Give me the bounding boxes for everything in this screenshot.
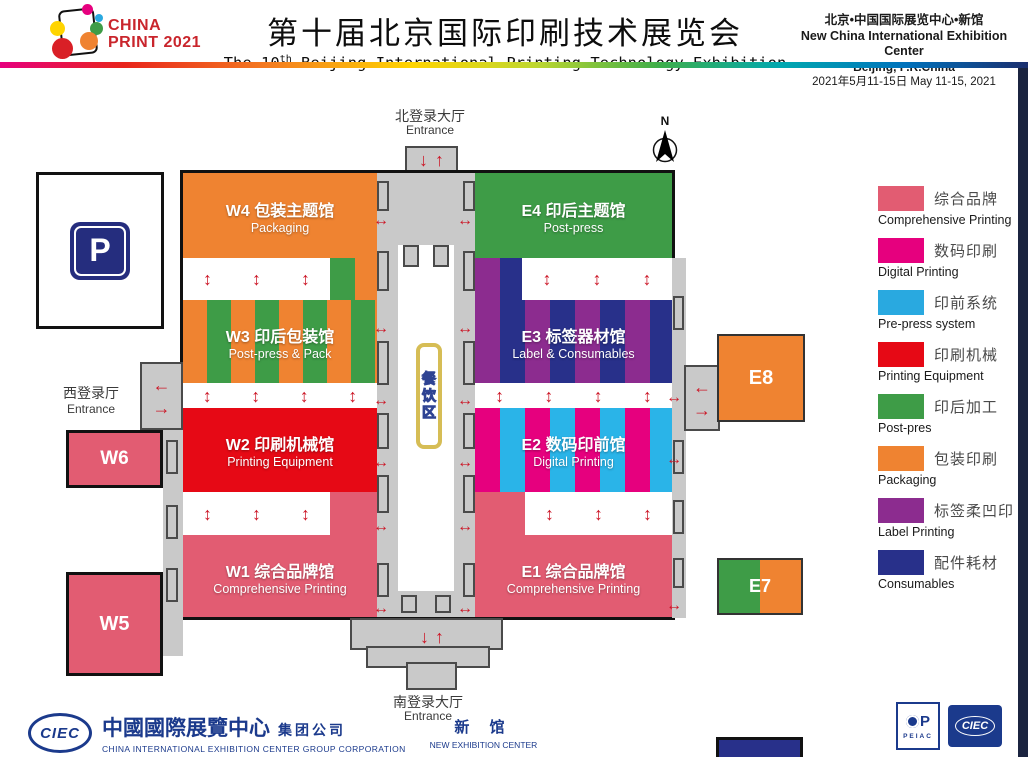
- up-down-arrow-icon: ↕: [543, 270, 552, 288]
- footer-organizer: CIEC 中國國際展覽中心 集团公司 CHINA INTERNATIONAL E…: [28, 712, 537, 754]
- aisle-walkway: ↕ ↕ ↕: [525, 492, 672, 535]
- e1-rose-column: [475, 492, 525, 535]
- legend: 综合品牌 Comprehensive Printing 数码印刷 Digital…: [878, 186, 1028, 602]
- up-down-arrow-icon: ↕: [544, 387, 553, 405]
- organizer-suffix: 集团公司: [278, 720, 346, 740]
- dining-area: 餐饮区: [416, 343, 442, 449]
- left-right-arrow-icon: ↔: [457, 213, 473, 229]
- legend-swatch: [878, 446, 924, 471]
- left-right-arrow-icon: ↔: [373, 601, 389, 617]
- organizer-name-cn: 中國國際展覽中心: [102, 712, 270, 742]
- hall-e8: E8: [717, 334, 805, 422]
- door: [463, 475, 475, 513]
- venue-chinese: 北京•中国国际展览中心•新馆: [786, 13, 1022, 29]
- exhibition-dates: 2021年5月11-15日 May 11-15, 2021: [786, 75, 1022, 89]
- compass-needle-icon: [650, 128, 680, 164]
- hall-w4: W4 包装主题馆 Packaging: [183, 173, 377, 258]
- up-down-arrow-icon: ↕: [203, 270, 212, 288]
- w3-orange-column: [355, 258, 377, 300]
- up-down-arrow-icon: ↕: [643, 505, 652, 523]
- hall-w1-name-cn: W1 综合品牌馆: [226, 558, 334, 582]
- peiac-mark: P: [906, 713, 930, 730]
- central-corridor: 餐饮区 ↔ ↔ ↔ ↔ ↔ ↔ ↔ ↔ ↔ ↔ ↔ ↔: [377, 173, 475, 618]
- left-right-arrow-icon: ↔: [457, 393, 473, 409]
- legend-label-en: Pre-press system: [878, 317, 1028, 331]
- peiac-p-letter: P: [920, 713, 930, 730]
- logo-dot-yellow: [50, 21, 65, 36]
- parking-area: P: [36, 172, 164, 329]
- hall-e7-label: E7: [749, 576, 771, 597]
- legend-swatch: [878, 290, 924, 315]
- door: [673, 500, 684, 534]
- up-down-arrow-icon: ↕: [495, 387, 504, 405]
- legend-label-en: Consumables: [878, 577, 1028, 591]
- w1-rose-column: [330, 492, 377, 535]
- ciec-logo: CIEC: [28, 713, 92, 753]
- hall-w2-name-en: Printing Equipment: [227, 455, 333, 469]
- legend-label-en: Printing Equipment: [878, 369, 1028, 383]
- legend-label-en: Label Printing: [878, 525, 1028, 539]
- legend-swatch: [878, 238, 924, 263]
- legend-label-cn: 印刷机械: [934, 344, 998, 365]
- hall-w4-name-en: Packaging: [251, 221, 309, 235]
- aisle-w4-w3: ↕ ↕ ↕: [183, 258, 377, 300]
- hall-e4-name-en: Post-press: [544, 221, 604, 235]
- logo-dot-red: [52, 38, 73, 59]
- parking-sign: P: [70, 222, 130, 280]
- hall-e4: E4 印后主题馆 Post-press: [475, 173, 672, 258]
- legend-label-cn: 综合品牌: [934, 188, 998, 209]
- west-entrance-label-cn: 西登录厅: [48, 383, 134, 403]
- door: [377, 181, 389, 211]
- logo-dot-blue: [95, 14, 103, 22]
- left-right-arrow-icon: ↔: [373, 519, 389, 535]
- legend-label-cn: 包装印刷: [934, 448, 998, 469]
- down-arrow-icon: ↓: [419, 151, 428, 169]
- up-down-arrow-icon: ↕: [252, 505, 261, 523]
- up-down-arrow-icon: ↕: [203, 505, 212, 523]
- hall-w2-name-cn: W2 印刷机械馆: [226, 431, 334, 455]
- door: [377, 475, 389, 513]
- hall-e2: E2 数码印前馆 Digital Printing: [475, 408, 672, 492]
- new-hall-cn: 新 馆: [430, 716, 538, 737]
- hall-w3-name-cn: W3 印后包装馆: [226, 323, 334, 347]
- hall-e1-name-en: Comprehensive Printing: [507, 582, 640, 596]
- north-entrance-label-en: Entrance: [370, 123, 490, 137]
- up-down-arrow-icon: ↕: [301, 505, 310, 523]
- east-entrance: ← →: [684, 365, 720, 431]
- door: [463, 181, 475, 211]
- legend-item: 印刷机械 Printing Equipment: [878, 342, 1028, 383]
- rainbow-divider: [0, 62, 1028, 68]
- door: [377, 563, 389, 597]
- hall-w5: W5: [66, 572, 163, 676]
- legend-item: 综合品牌 Comprehensive Printing: [878, 186, 1028, 227]
- left-arrow-icon: ←: [693, 378, 711, 396]
- door: [166, 440, 178, 474]
- dining-area-label: 餐饮区: [419, 371, 439, 422]
- legend-label-cn: 数码印刷: [934, 240, 998, 261]
- hall-w2: W2 印刷机械馆 Printing Equipment: [183, 408, 377, 492]
- ciec-logo-small-text: CIEC: [955, 716, 995, 736]
- south-entrance-arrows: ↓ ↑: [408, 628, 456, 646]
- legend-item: 配件耗材 Consumables: [878, 550, 1028, 591]
- up-down-arrow-icon: ↕: [545, 505, 554, 523]
- venue-english: New China International Exhibition Cente…: [786, 29, 1022, 60]
- organizer-name: 中國國際展覽中心 集团公司 CHINA INTERNATIONAL EXHIBI…: [102, 712, 406, 754]
- aisle-e4-e3: ↕ ↕ ↕: [475, 258, 672, 300]
- legend-label-cn: 印后加工: [934, 396, 998, 417]
- ciec-logo-text: CIEC: [40, 725, 80, 742]
- brand-line2: PRINT 2021: [108, 35, 201, 52]
- door: [673, 296, 684, 330]
- aisle-w3-w2: ↕ ↕ ↕ ↕: [183, 383, 377, 408]
- legend-swatch: [878, 186, 924, 211]
- up-down-arrow-icon: ↕: [251, 387, 260, 405]
- hall-w1-name-en: Comprehensive Printing: [213, 582, 346, 596]
- legend-label-cn: 配件耗材: [934, 552, 998, 573]
- up-down-arrow-icon: ↕: [594, 505, 603, 523]
- venue-info: 北京•中国国际展览中心•新馆 New China International E…: [786, 13, 1022, 89]
- left-arrow-icon: ←: [153, 376, 171, 394]
- up-down-arrow-icon: ↕: [301, 270, 310, 288]
- peiac-caption: PEIAC: [903, 733, 933, 740]
- up-down-arrow-icon: ↕: [643, 387, 652, 405]
- hall-e1-name-cn: E1 综合品牌馆: [521, 558, 625, 582]
- logo-dot-orange: [80, 32, 98, 50]
- right-arrow-icon: →: [693, 401, 711, 419]
- door: [166, 568, 178, 602]
- up-down-arrow-icon: ↕: [300, 387, 309, 405]
- left-right-arrow-icon: ↔: [457, 321, 473, 337]
- aisle-walkway: ↕ ↕ ↕: [522, 258, 672, 300]
- door: [401, 595, 417, 613]
- door: [463, 341, 475, 385]
- legend-swatch: [878, 342, 924, 367]
- hall-e8-label: E8: [749, 367, 773, 390]
- hall-e6: E6: [716, 737, 803, 757]
- aisle-e2-e1: ↕ ↕ ↕: [475, 492, 672, 535]
- door: [463, 563, 475, 597]
- legend-label-cn: 印前系统: [934, 292, 998, 313]
- exhibition-floor-plan: CHINA PRINT 2021 第十届北京国际印刷技术展览会 The 10th…: [0, 0, 1028, 757]
- legend-swatch: [878, 498, 924, 523]
- door: [377, 413, 389, 449]
- brand-line1: CHINA: [108, 18, 201, 35]
- legend-swatch: [878, 394, 924, 419]
- door: [403, 245, 419, 267]
- up-arrow-icon: ↑: [435, 151, 444, 169]
- left-right-arrow-icon: ↔: [666, 598, 682, 614]
- aisle-walkway: ↕ ↕ ↕: [183, 258, 330, 300]
- e3-striped-column: [475, 258, 522, 300]
- left-right-arrow-icon: ↔: [373, 321, 389, 337]
- up-down-arrow-icon: ↕: [348, 387, 357, 405]
- legend-item: 印前系统 Pre-press system: [878, 290, 1028, 331]
- door: [433, 245, 449, 267]
- down-arrow-icon: ↓: [420, 628, 429, 646]
- legend-label-en: Packaging: [878, 473, 1028, 487]
- door: [435, 595, 451, 613]
- legend-item: 包装印刷 Packaging: [878, 446, 1028, 487]
- up-down-arrow-icon: ↕: [643, 270, 652, 288]
- up-down-arrow-icon: ↕: [593, 270, 602, 288]
- left-right-arrow-icon: ↔: [373, 213, 389, 229]
- legend-label-en: Comprehensive Printing: [878, 213, 1028, 227]
- left-right-arrow-icon: ↔: [666, 390, 682, 406]
- compass-n-label: N: [648, 114, 682, 128]
- up-down-arrow-icon: ↕: [594, 387, 603, 405]
- parking-sign-inner: P: [74, 226, 126, 276]
- brand-text: CHINA PRINT 2021: [108, 18, 201, 52]
- up-arrow-icon: ↑: [435, 628, 444, 646]
- legend-label-cn: 标签柔凹印: [934, 500, 1014, 521]
- aisle-walkway: ↕ ↕ ↕: [183, 492, 330, 535]
- door: [377, 341, 389, 385]
- hall-w1: W1 综合品牌馆 Comprehensive Printing: [183, 535, 377, 618]
- door: [673, 558, 684, 588]
- up-down-arrow-icon: ↕: [203, 387, 212, 405]
- south-entrance: [406, 662, 457, 690]
- ciec-logo-small: CIEC: [948, 705, 1002, 747]
- legend-item: 数码印刷 Digital Printing: [878, 238, 1028, 279]
- footer-logos: P PEIAC CIEC: [896, 702, 1002, 750]
- hall-e2-name-cn: E2 数码印前馆: [521, 431, 625, 455]
- hall-e1: E1 综合品牌馆 Comprehensive Printing: [475, 535, 672, 618]
- door: [166, 505, 178, 539]
- hall-w3-name-en: Post-press & Pack: [229, 347, 332, 361]
- peiac-logo: P PEIAC: [896, 702, 940, 750]
- new-exhibition-center: 新 馆 NEW EXHIBITION CENTER: [430, 716, 538, 750]
- hall-w6: W6: [66, 430, 163, 488]
- hall-w6-label: W6: [100, 448, 129, 470]
- aisle-w2-w1: ↕ ↕ ↕: [183, 492, 377, 535]
- door: [463, 413, 475, 449]
- up-down-arrow-icon: ↕: [252, 270, 261, 288]
- west-entrance-label-en: Entrance: [48, 402, 134, 416]
- organizer-name-en: CHINA INTERNATIONAL EXHIBITION CENTER GR…: [102, 744, 406, 754]
- hall-w4-name-cn: W4 包装主题馆: [226, 197, 334, 221]
- title-chinese: 第十届北京国际印刷技术展览会: [205, 8, 805, 53]
- right-arrow-icon: →: [153, 399, 171, 417]
- left-right-arrow-icon: ↔: [373, 455, 389, 471]
- hall-w3: W3 印后包装馆 Post-press & Pack: [183, 300, 377, 383]
- new-hall-en: NEW EXHIBITION CENTER: [430, 740, 538, 750]
- hall-e3: E3 标签器材馆 Label & Consumables: [475, 300, 672, 383]
- parking-letter: P: [89, 232, 110, 269]
- door: [463, 251, 475, 291]
- logo-dot-magenta: [82, 4, 93, 15]
- hall-e7: E7: [717, 558, 803, 615]
- hall-e3-name-en: Label & Consumables: [512, 347, 634, 361]
- aisle-e3-e2: ↕ ↕ ↕ ↕: [475, 383, 672, 408]
- legend-swatch: [878, 550, 924, 575]
- left-right-arrow-icon: ↔: [457, 519, 473, 535]
- left-right-arrow-icon: ↔: [666, 452, 682, 468]
- west-entrance: ← →: [140, 362, 183, 430]
- left-right-arrow-icon: ↔: [457, 601, 473, 617]
- peiac-circle-icon: [906, 715, 919, 728]
- hall-e4-name-cn: E4 印后主题馆: [521, 197, 625, 221]
- north-entrance: ↓ ↑: [405, 146, 458, 174]
- compass: N: [648, 114, 682, 169]
- legend-item: 标签柔凹印 Label Printing: [878, 498, 1028, 539]
- hall-w5-label: W5: [100, 613, 130, 636]
- left-right-arrow-icon: ↔: [457, 455, 473, 471]
- w3-green-column: [330, 258, 355, 300]
- legend-item: 印后加工 Post-pres: [878, 394, 1028, 435]
- legend-label-en: Post-pres: [878, 421, 1028, 435]
- door: [377, 251, 389, 291]
- hall-e3-name-cn: E3 标签器材馆: [521, 323, 625, 347]
- left-right-arrow-icon: ↔: [373, 393, 389, 409]
- hall-e2-name-en: Digital Printing: [533, 455, 614, 469]
- legend-label-en: Digital Printing: [878, 265, 1028, 279]
